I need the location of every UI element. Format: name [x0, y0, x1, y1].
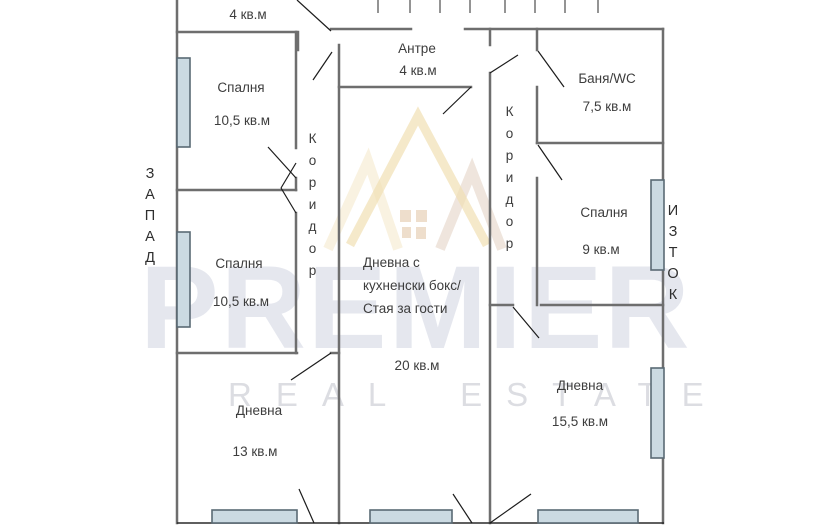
room-label-living2-area: 13 кв.м — [233, 444, 278, 459]
room-label-living2-name: Дневна — [236, 403, 282, 418]
room-label-bath-area: 7,5 кв.м — [583, 99, 632, 114]
compass-west-label: ЗАПАД — [142, 166, 158, 271]
room-label-bedroom2-name: Спалня — [215, 256, 262, 271]
window-icon — [370, 510, 452, 523]
room-label-bedroom3-name: Спалня — [580, 205, 627, 220]
window-icon — [651, 368, 664, 458]
room-label-living-main-area: 20 кв.м — [395, 358, 440, 373]
window-icon — [538, 510, 638, 523]
window-icon — [177, 58, 190, 147]
living-main-line3: Стая за гости — [363, 297, 461, 320]
corridor-right-label: Коридор — [502, 104, 517, 258]
room-label-bedroom1-name: Спалня — [217, 80, 264, 95]
room-label-bath-name: Баня/WC — [578, 71, 635, 86]
room-label-entry-area: 4 кв.м — [399, 63, 436, 78]
room-label-bedroom3-area: 9 кв.м — [582, 242, 619, 257]
floor-plan: PREMIER REAL ESTATE — [0, 0, 824, 528]
window-icon — [212, 510, 297, 523]
room-label-living-main-name: Дневна с кухненски бокс/ Стая за гости — [363, 251, 461, 320]
window-icon — [177, 232, 190, 327]
corridor-left-label: Коридор — [305, 131, 320, 285]
railing-icon — [378, 0, 598, 13]
room-label-entry-name: Антре — [398, 41, 436, 56]
room-label-bedroom1-area: 10,5 кв.м — [214, 113, 270, 128]
room-label-bedroom2-area: 10,5 кв.м — [213, 294, 269, 309]
living-main-line2: кухненски бокс/ — [363, 274, 461, 297]
room-label-living3-name: Дневна — [557, 378, 603, 393]
compass-east-label: ИЗТОК — [665, 203, 681, 308]
living-main-line1: Дневна с — [363, 251, 461, 274]
room-label-storage-area: 4 кв.м — [229, 7, 266, 22]
room-label-living3-area: 15,5 кв.м — [552, 414, 608, 429]
window-icon — [651, 180, 664, 270]
